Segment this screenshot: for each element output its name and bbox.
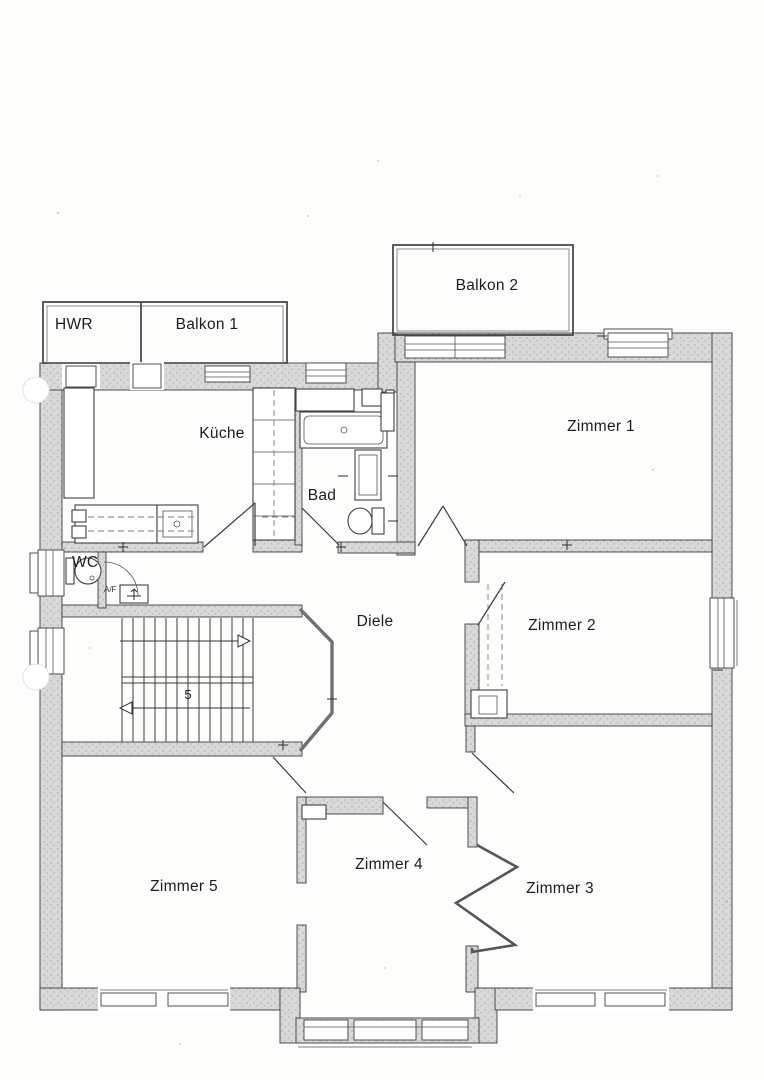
punch-hole [23,664,49,690]
bathtub [300,412,387,448]
zimmer5-door [273,757,306,793]
punch-hole [23,377,49,403]
bay-window [422,1020,468,1040]
stair-bay-wall [300,609,332,751]
zimmer4-door [383,802,427,845]
hwr-door [66,366,96,387]
wc-window [38,550,64,596]
zimmer2-window [710,598,734,668]
label-kueche: Küche [199,425,244,442]
zimmer1-door [418,506,443,546]
zimmer1-window [608,333,668,357]
label-bad: Bad [308,487,336,504]
zimmer3-door [472,753,514,793]
bad-door [302,508,339,545]
scanned-floorplan-page: HWR Balkon 1 Balkon 2 Küche Bad WC Diele… [0,0,764,1080]
label-wc: WC [72,554,98,571]
balkon1-door [133,364,161,388]
bad-appliance [296,389,354,411]
label-zimmer1: Zimmer 1 [567,418,635,435]
label-vent: A/F [104,585,117,594]
bay-window [354,1020,416,1040]
label-stair-count: 5 [184,687,191,702]
pantry-cupboard [64,388,94,498]
bay-window [304,1020,348,1040]
kitchen-counter [75,505,157,543]
bad-window [306,363,346,383]
zimmer5-window [168,993,228,1006]
zimmer3-window [605,993,665,1006]
label-zimmer5: Zimmer 5 [150,878,218,895]
bad-toilet [348,508,372,534]
label-zimmer3: Zimmer 3 [526,880,594,897]
bad-toilet-tank [372,508,384,534]
zimmer5-window [101,993,156,1006]
zimmer3-window [536,993,595,1006]
staircase [120,618,253,742]
label-zimmer4: Zimmer 4 [355,856,423,873]
label-zimmer2: Zimmer 2 [528,617,596,634]
label-balkon2: Balkon 2 [456,277,519,294]
label-diele: Diele [357,613,394,630]
kueche-window [205,366,250,382]
zimmer4-radiator [302,805,326,819]
zimmer2-door [478,582,505,625]
stair-up-arrow [238,635,250,647]
label-balkon1: Balkon 1 [176,316,239,333]
label-hwr: HWR [55,316,93,333]
bad-shelf [381,393,394,431]
floor-plan-svg: HWR Balkon 1 Balkon 2 Küche Bad WC Diele… [0,0,764,1080]
